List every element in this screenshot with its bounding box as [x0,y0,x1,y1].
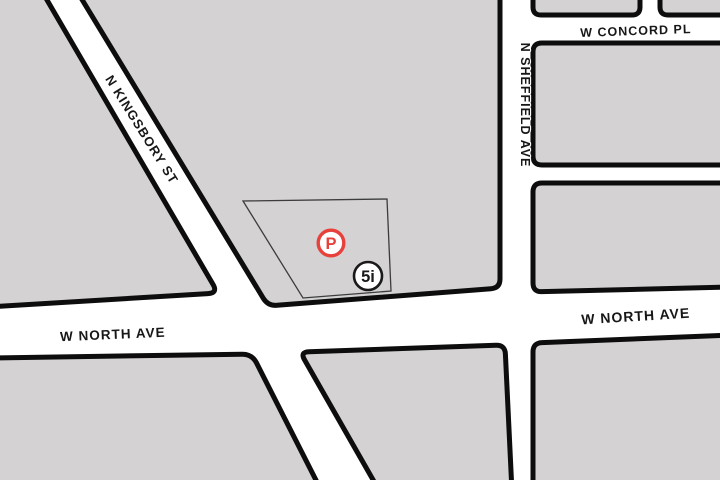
city-block-top-right-b [660,0,720,15]
poi-marker-5i[interactable]: 5i [354,262,382,290]
city-block-right-upper [533,43,720,165]
map-viewport: N KINGSBORY ST W CONCORD PL N SHEFFIELD … [0,0,720,480]
street-label-sheffield: N SHEFFIELD AVE [518,43,532,168]
city-block-bottom-right [533,335,720,480]
parking-marker-letter: P [325,235,336,253]
parking-marker[interactable]: P [318,230,344,256]
map-canvas: N KINGSBORY ST W CONCORD PL N SHEFFIELD … [0,0,720,480]
city-block-right-lower [533,183,720,292]
poi-marker-label: 5i [361,268,375,286]
city-block-top-right-a [533,0,640,15]
